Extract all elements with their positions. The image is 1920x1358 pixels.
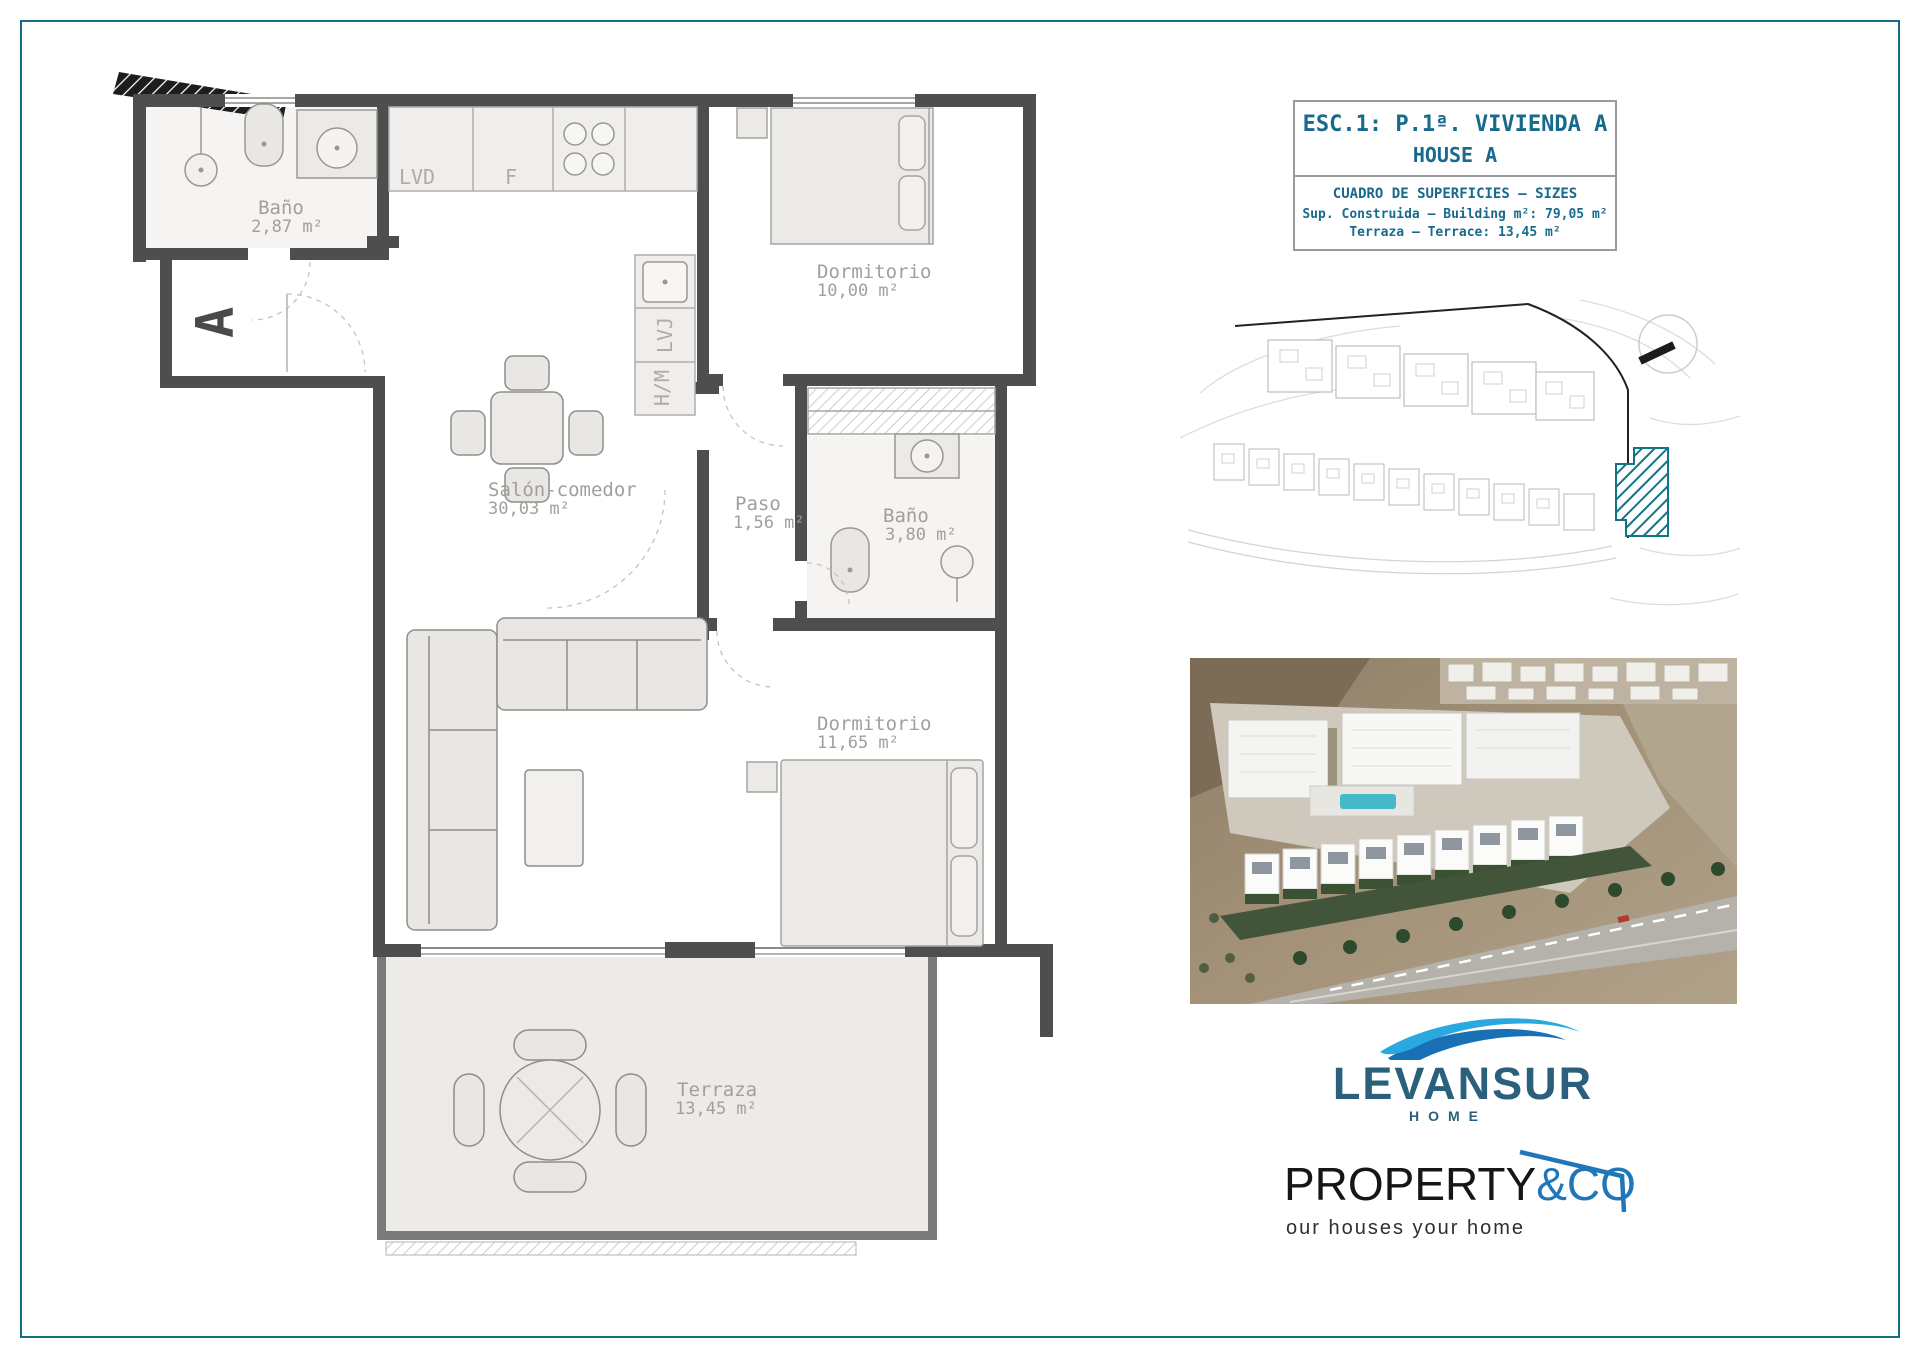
- svg-text:30,03 m²: 30,03 m²: [488, 499, 570, 519]
- svg-text:Baño: Baño: [258, 197, 304, 219]
- levansur-subtitle: HOME: [1288, 1108, 1608, 1124]
- svg-text:Dormitorio: Dormitorio: [817, 261, 931, 283]
- unit-marker: [1616, 448, 1668, 536]
- property-wordmark: PROPERTY&CO: [1284, 1158, 1636, 1210]
- dishwasher-label: LVJ: [653, 317, 677, 353]
- fridge-label: F: [505, 165, 517, 189]
- svg-text:3,80 m²: 3,80 m²: [885, 525, 957, 545]
- title-block: ESC.1: P.1ª. VIVIENDA A HOUSE A CUADRO D…: [1293, 100, 1617, 251]
- oven-label: H/M: [650, 370, 674, 406]
- svg-text:Salón-comedor: Salón-comedor: [488, 479, 637, 501]
- plan-subtitle: HOUSE A: [1299, 143, 1611, 167]
- levansur-wordmark: LEVANSUR: [1318, 1061, 1608, 1106]
- room-label-bedroom-1: Dormitorio 10,00 m²: [817, 261, 931, 301]
- levansur-logo: LEVANSUR HOME: [1318, 1014, 1608, 1142]
- apartment-blocks: [1268, 340, 1594, 420]
- wave-icon: [1318, 1014, 1608, 1060]
- room-label-bedroom-2: Dormitorio 11,65 m²: [817, 713, 931, 753]
- svg-text:11,65 m²: 11,65 m²: [817, 733, 899, 753]
- svg-text:Dormitorio: Dormitorio: [817, 713, 931, 735]
- title-box: ESC.1: P.1ª. VIVIENDA A HOUSE A: [1293, 100, 1617, 177]
- entry: A: [186, 294, 365, 372]
- hallway: Paso 1,56 m²: [717, 493, 805, 687]
- svg-text:Terraza: Terraza: [677, 1079, 757, 1101]
- aerial-photo: [1190, 658, 1737, 1004]
- property-tagline: our houses your home: [1286, 1217, 1525, 1239]
- compass-icon: [1639, 315, 1697, 373]
- plan-sheet: Baño 2,87 m² LVD F LVJ H/M A: [0, 0, 1920, 1358]
- bedroom-2: [747, 760, 983, 946]
- washer-label: LVD: [399, 165, 435, 189]
- site-plan: [1180, 298, 1740, 646]
- svg-text:13,45 m²: 13,45 m²: [675, 1099, 757, 1119]
- living-room: [407, 356, 707, 930]
- size-row-built: Sup. Construida – Building m²: 79,05 m²: [1298, 207, 1612, 222]
- townhouse-row: [1214, 444, 1594, 530]
- property-logo: PROPERTY&CO our houses your home: [1282, 1144, 1652, 1248]
- floor-plan: Baño 2,87 m² LVD F LVJ H/M A: [105, 70, 1075, 1270]
- svg-text:Paso: Paso: [735, 493, 781, 515]
- svg-text:Baño: Baño: [883, 505, 929, 527]
- svg-text:10,00 m²: 10,00 m²: [817, 281, 899, 301]
- svg-text:2,87 m²: 2,87 m²: [251, 217, 323, 237]
- property-logo-art: PROPERTY&CO our houses your home: [1282, 1144, 1652, 1248]
- stair-label: A: [186, 307, 246, 338]
- room-label-living: Salón-comedor 30,03 m²: [488, 479, 637, 519]
- plan-title: ESC.1: P.1ª. VIVIENDA A: [1299, 112, 1611, 137]
- room-label-terrace: Terraza 13,45 m²: [675, 1079, 757, 1119]
- svg-text:1,56 m²: 1,56 m²: [733, 513, 805, 533]
- size-row-terrace: Terraza – Terrace: 13,45 m²: [1298, 225, 1612, 240]
- pool: [1340, 794, 1396, 809]
- sizes-box: CUADRO DE SUPERFICIES – SIZES Sup. Const…: [1293, 177, 1617, 251]
- sizes-title: CUADRO DE SUPERFICIES – SIZES: [1298, 186, 1612, 202]
